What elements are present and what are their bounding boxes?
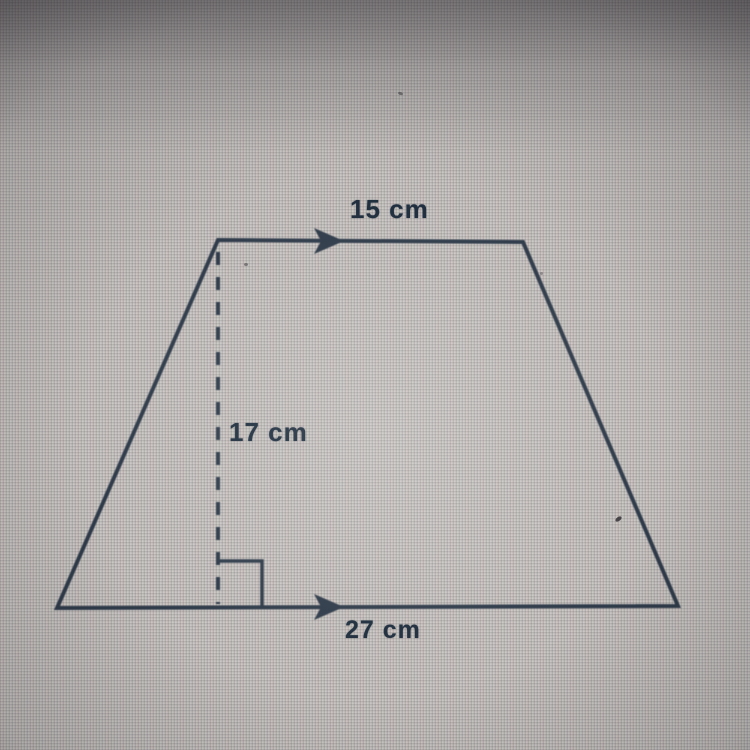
photographed-screen: 15 cm 17 cm 27 cm: [0, 0, 750, 750]
dust-speck: [244, 263, 248, 266]
right-angle-marker: [218, 561, 262, 606]
dust-speck: [540, 272, 543, 275]
trapezoid-outline: [57, 240, 678, 608]
bottom-base-label: 27 cm: [345, 616, 421, 645]
top-base-label: 15 cm: [350, 194, 429, 225]
height-label: 17 cm: [229, 417, 308, 448]
